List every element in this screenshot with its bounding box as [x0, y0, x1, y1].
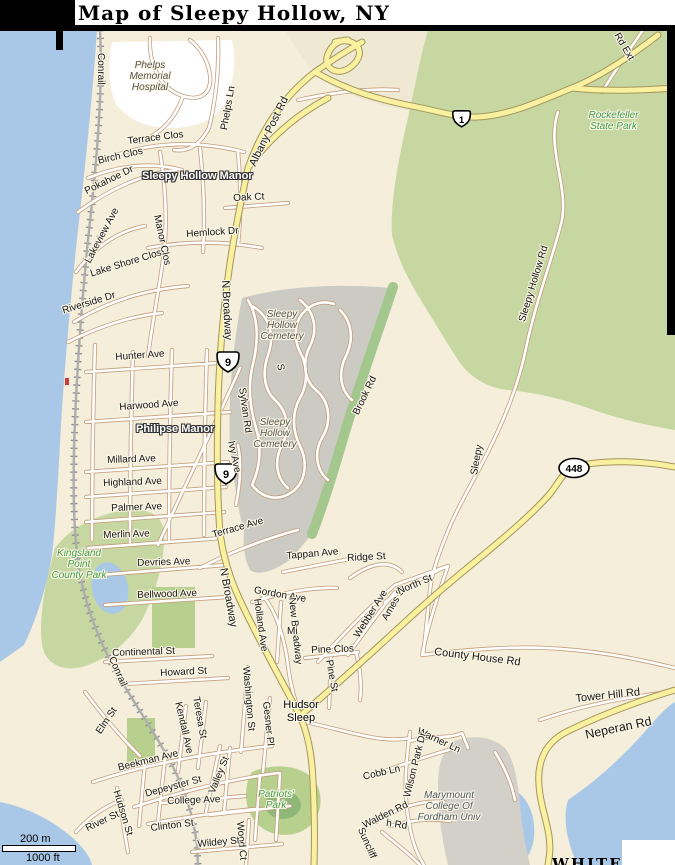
title-rule [0, 25, 675, 31]
scale-bar-rule [2, 845, 76, 852]
street-label-highland-ave: Highland Ave [103, 476, 162, 489]
park-label-rockefeller: Rockefeller State Park [566, 110, 661, 132]
street-label-merlin-ave: Merlin Ave [103, 528, 150, 541]
college-label-marymount: Marymount College Of Fordham Univ [410, 790, 488, 823]
street-label-college-ave: College Ave [167, 794, 221, 807]
place-label-philipse-manor: Philipse Manor [136, 423, 214, 435]
corner-white-box [622, 840, 675, 865]
right-black-bar [667, 30, 675, 335]
scale-metric-label: 200 m [20, 833, 76, 845]
cemetery-label-2: Sleepy Hollow Cemetery [240, 417, 310, 450]
place-label-sleepy-hollow-manor: Sleepy Hollow Manor [142, 170, 253, 182]
park-label-patriots: Patriots' Park [247, 789, 305, 811]
street-label-devries-ave: Devries Ave [137, 556, 191, 569]
street-label-ridge-st: Ridge St [347, 551, 386, 564]
street-label-oak-ct: Oak Ct [233, 191, 265, 204]
page-title: Map of Sleepy Hollow, NY [78, 1, 390, 25]
scale-imperial-label: 1000 ft [26, 852, 76, 864]
title-black-block [0, 0, 75, 25]
railroad-label: Conrail [95, 53, 106, 85]
svg-text:9: 9 [223, 469, 229, 481]
street-label-pine-clos: Pine Clos [311, 644, 354, 656]
station-marker [65, 378, 69, 385]
ny448-shield-icon: 448 [559, 459, 589, 478]
street-label-continental-st: Continental St [112, 646, 175, 659]
svg-text:448: 448 [566, 464, 583, 475]
svg-text:9: 9 [225, 357, 231, 369]
street-label-palmer-ave: Palmer Ave [111, 501, 162, 514]
street-label-s-partial: S [274, 363, 286, 371]
street-label-bellwood-ave: Bellwood Ave [137, 588, 197, 601]
title-black-stub [56, 28, 63, 50]
hospital-label: Phelps Memorial Hospital [114, 60, 186, 93]
place-label-hudson-sleepy: Hudsor Sleep [277, 699, 325, 724]
street-label-mi-partial: Mi [287, 626, 298, 637]
svg-text:1: 1 [459, 115, 465, 126]
park-label-kingsland: Kingsland Point County Park [35, 548, 123, 581]
scale-bar: 200 m 1000 ft [2, 833, 76, 864]
map-page: 9 9 1 448 Conrail Phelps Memorial Hospit… [0, 0, 675, 865]
street-label-millard-ave: Millard Ave [107, 453, 156, 466]
cemetery-label-1: Sleepy Hollow Cemetery [246, 309, 318, 342]
